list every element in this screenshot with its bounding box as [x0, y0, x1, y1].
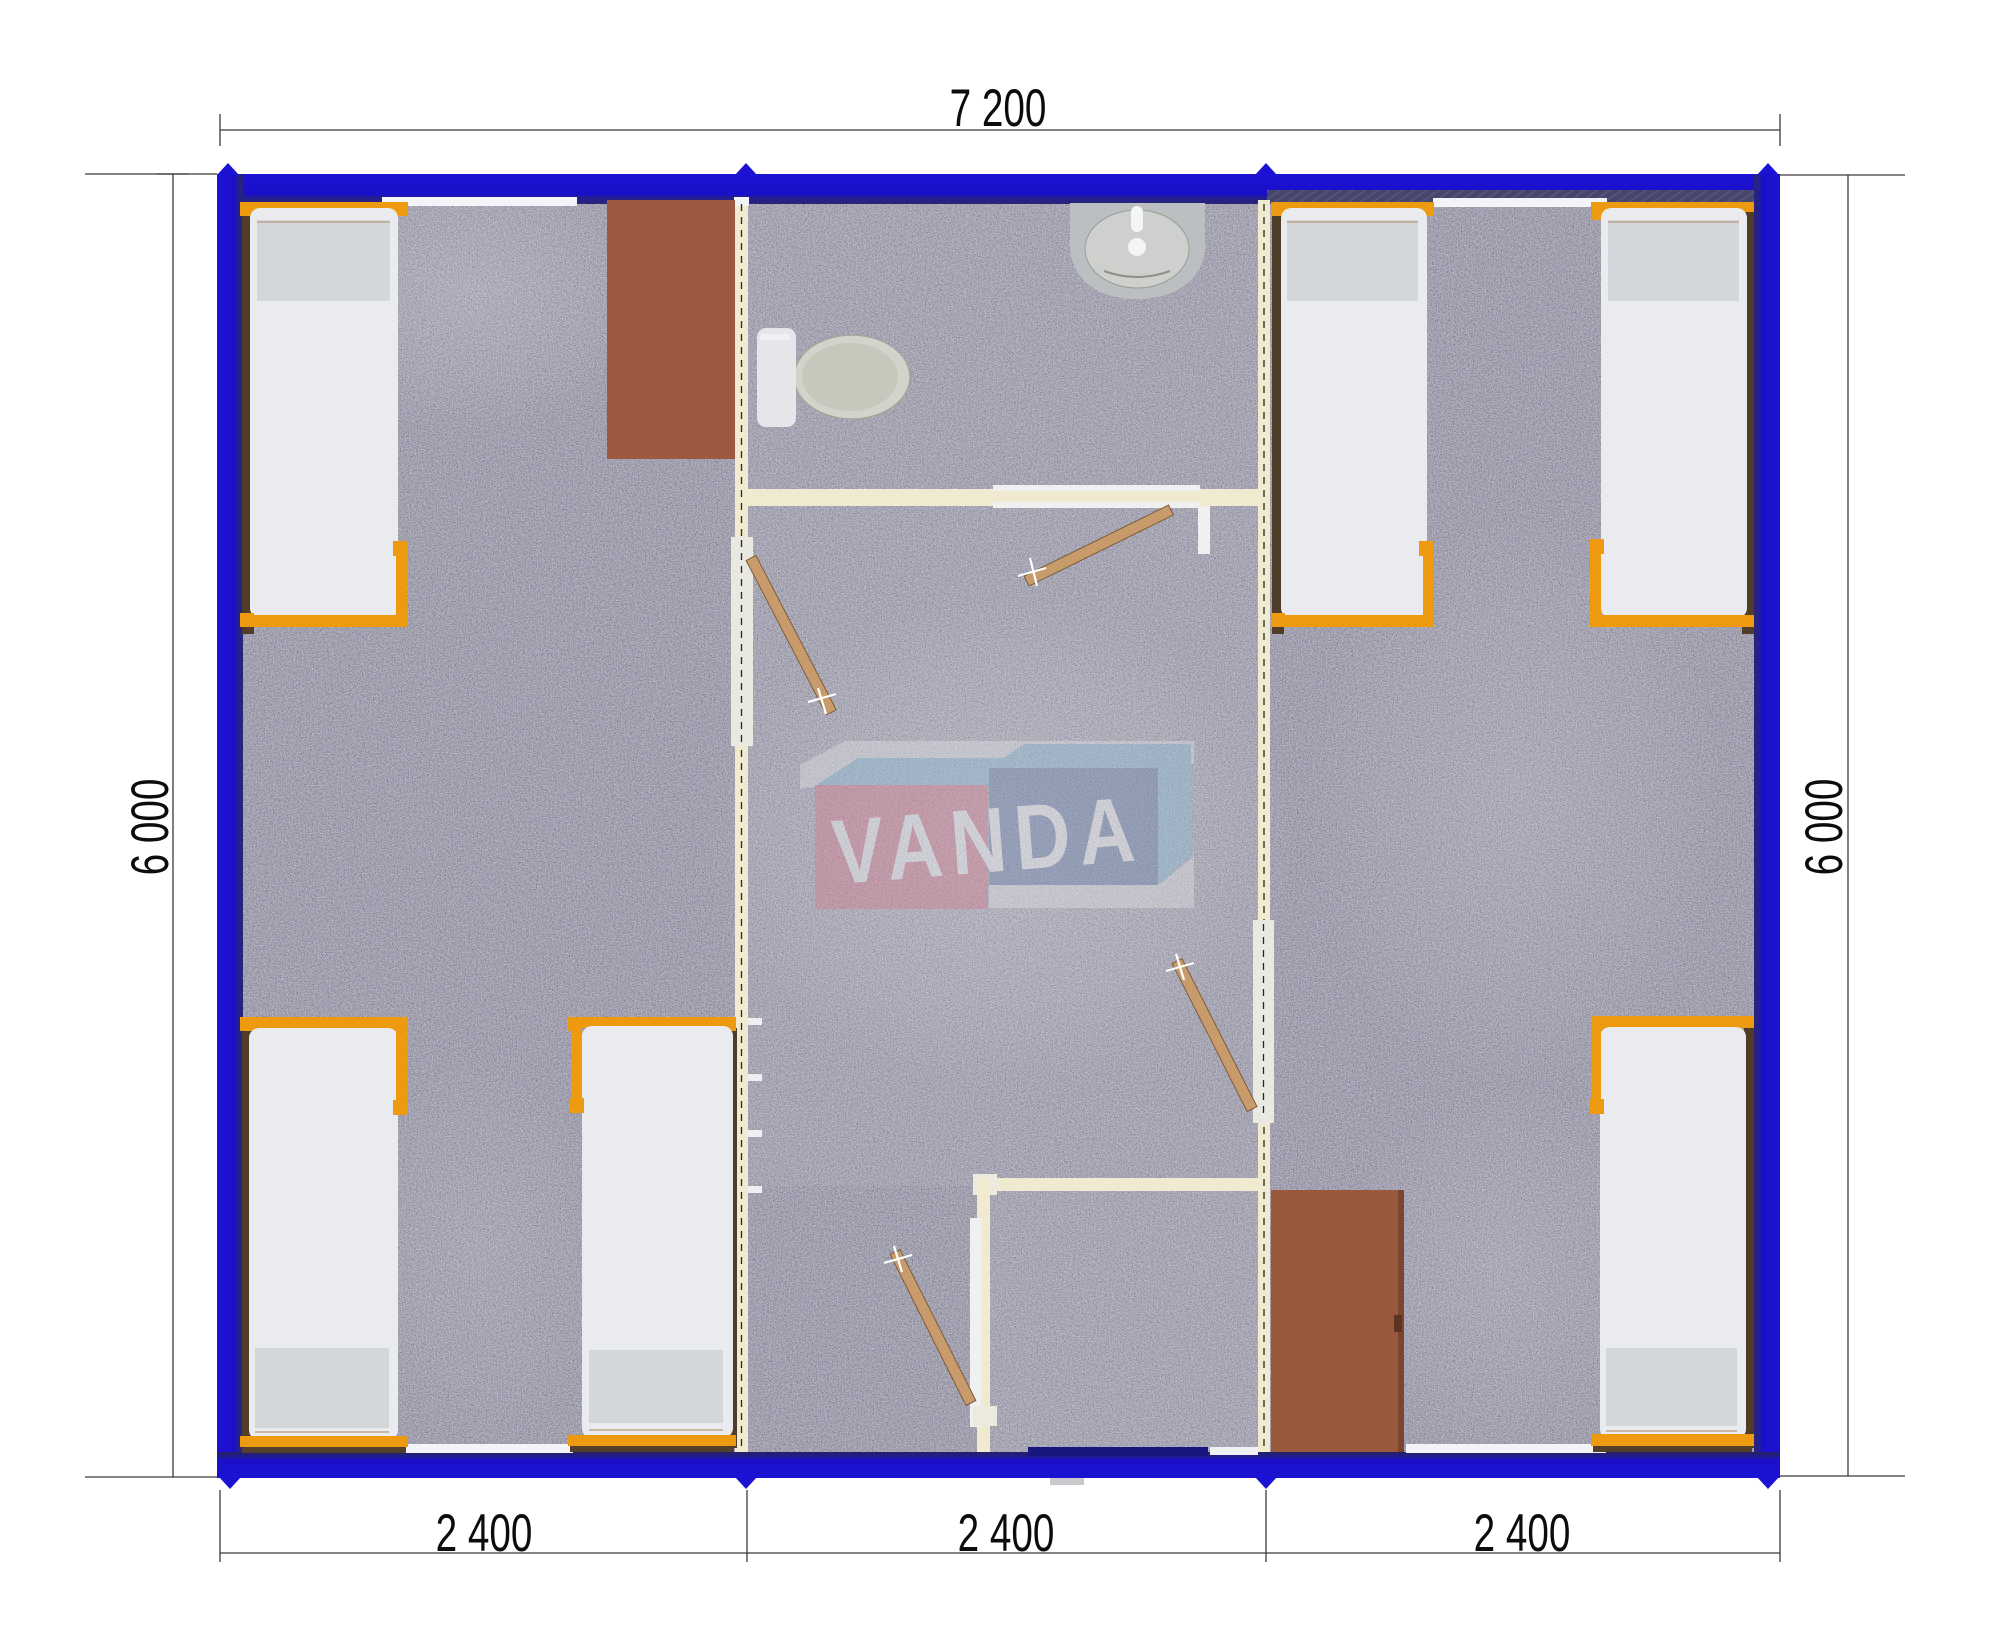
- svg-text:2 400: 2 400: [1474, 1503, 1571, 1562]
- svg-text:6 000: 6 000: [1794, 779, 1853, 876]
- svg-text:7 200: 7 200: [950, 78, 1047, 137]
- svg-text:2 400: 2 400: [958, 1503, 1055, 1562]
- svg-text:6 000: 6 000: [120, 779, 179, 876]
- svg-text:2 400: 2 400: [436, 1503, 533, 1562]
